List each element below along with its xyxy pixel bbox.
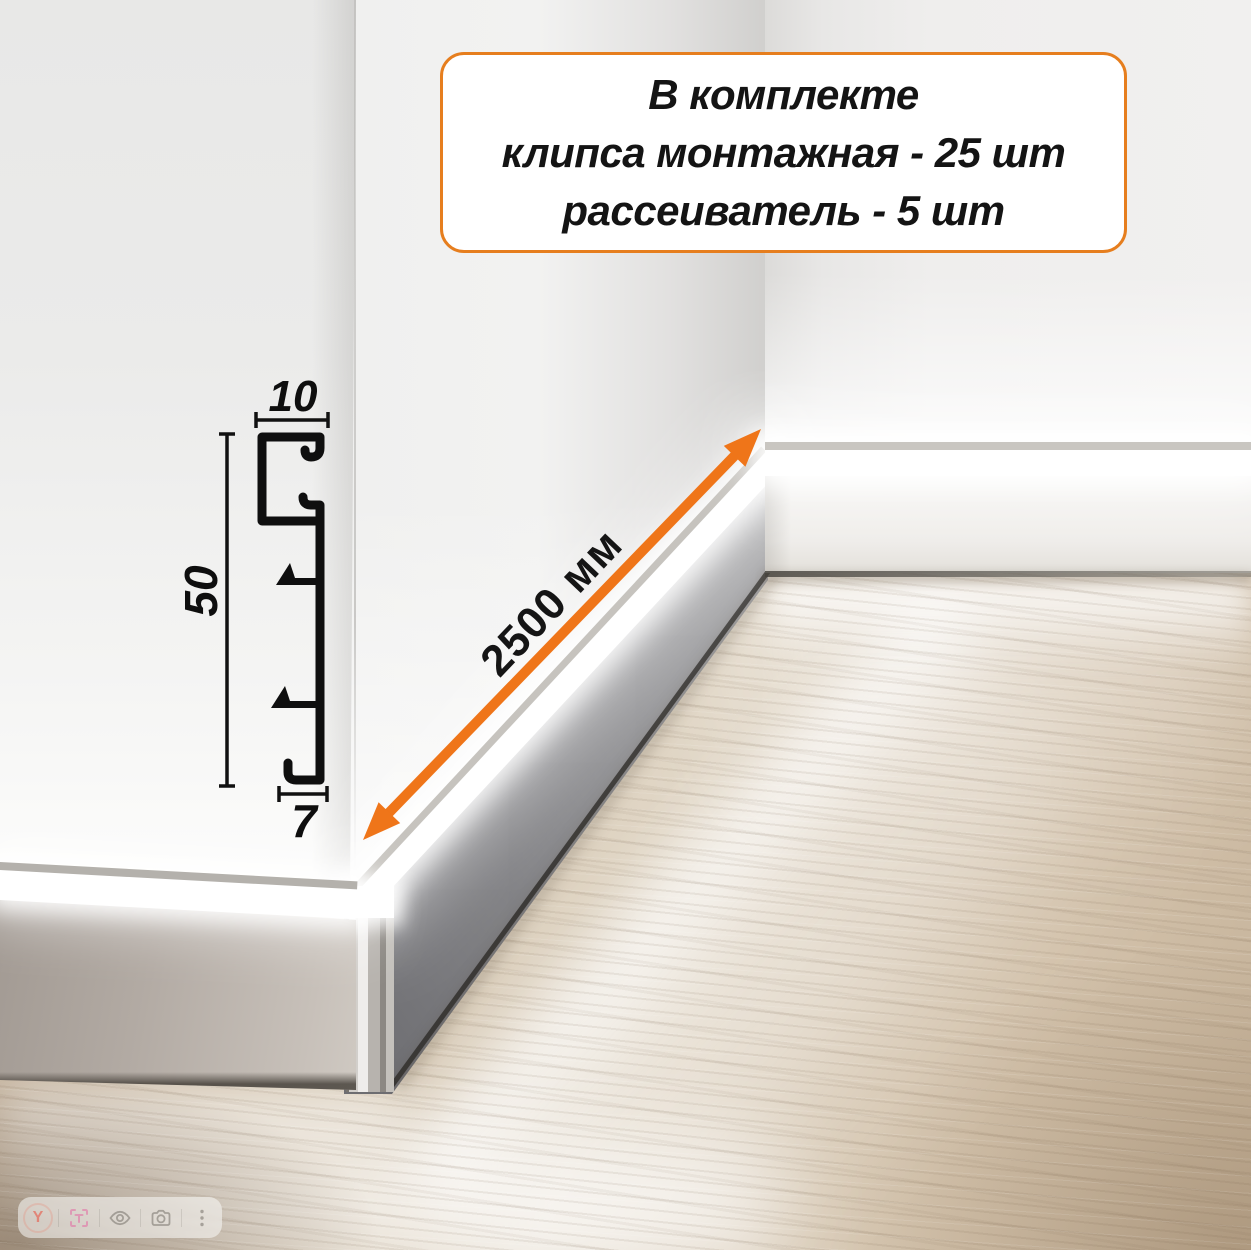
yandex-letter: Y xyxy=(23,1203,53,1233)
translate-image-icon[interactable] xyxy=(64,1203,94,1233)
callout-line-3: рассеиватель - 5 шт xyxy=(562,182,1004,240)
skirting-front-face xyxy=(0,890,356,1090)
camera-icon[interactable] xyxy=(146,1203,176,1233)
skirting-right-face xyxy=(765,468,1251,573)
image-overlay-toolbar: Y xyxy=(18,1197,222,1238)
led-strip-right xyxy=(765,442,1251,476)
skirting-right-bottom-edge xyxy=(765,571,1251,577)
callout-line-1: В комплекте xyxy=(648,66,919,124)
product-image: В комплекте клипса монтажная - 25 шт рас… xyxy=(0,0,1251,1250)
led-floor-glow-right xyxy=(770,578,1251,663)
kit-contents-callout: В комплекте клипса монтажная - 25 шт рас… xyxy=(440,52,1127,253)
kebab-menu-icon[interactable] xyxy=(187,1203,217,1233)
led-floor-glow-right-wide xyxy=(740,578,1251,838)
toolbar-separator xyxy=(140,1209,141,1227)
yandex-logo-icon[interactable]: Y xyxy=(23,1203,53,1233)
toolbar-separator xyxy=(58,1209,59,1227)
toolbar-separator xyxy=(181,1209,182,1227)
callout-line-2: клипса монтажная - 25 шт xyxy=(502,124,1066,182)
floor-shadow-bottom-right xyxy=(840,940,1251,1250)
toolbar-separator xyxy=(99,1209,100,1227)
led-floor-glow-bottom-left xyxy=(0,1092,400,1182)
eye-icon[interactable] xyxy=(105,1203,135,1233)
wall-left xyxy=(0,0,356,892)
wall-corner-seam xyxy=(354,0,356,890)
